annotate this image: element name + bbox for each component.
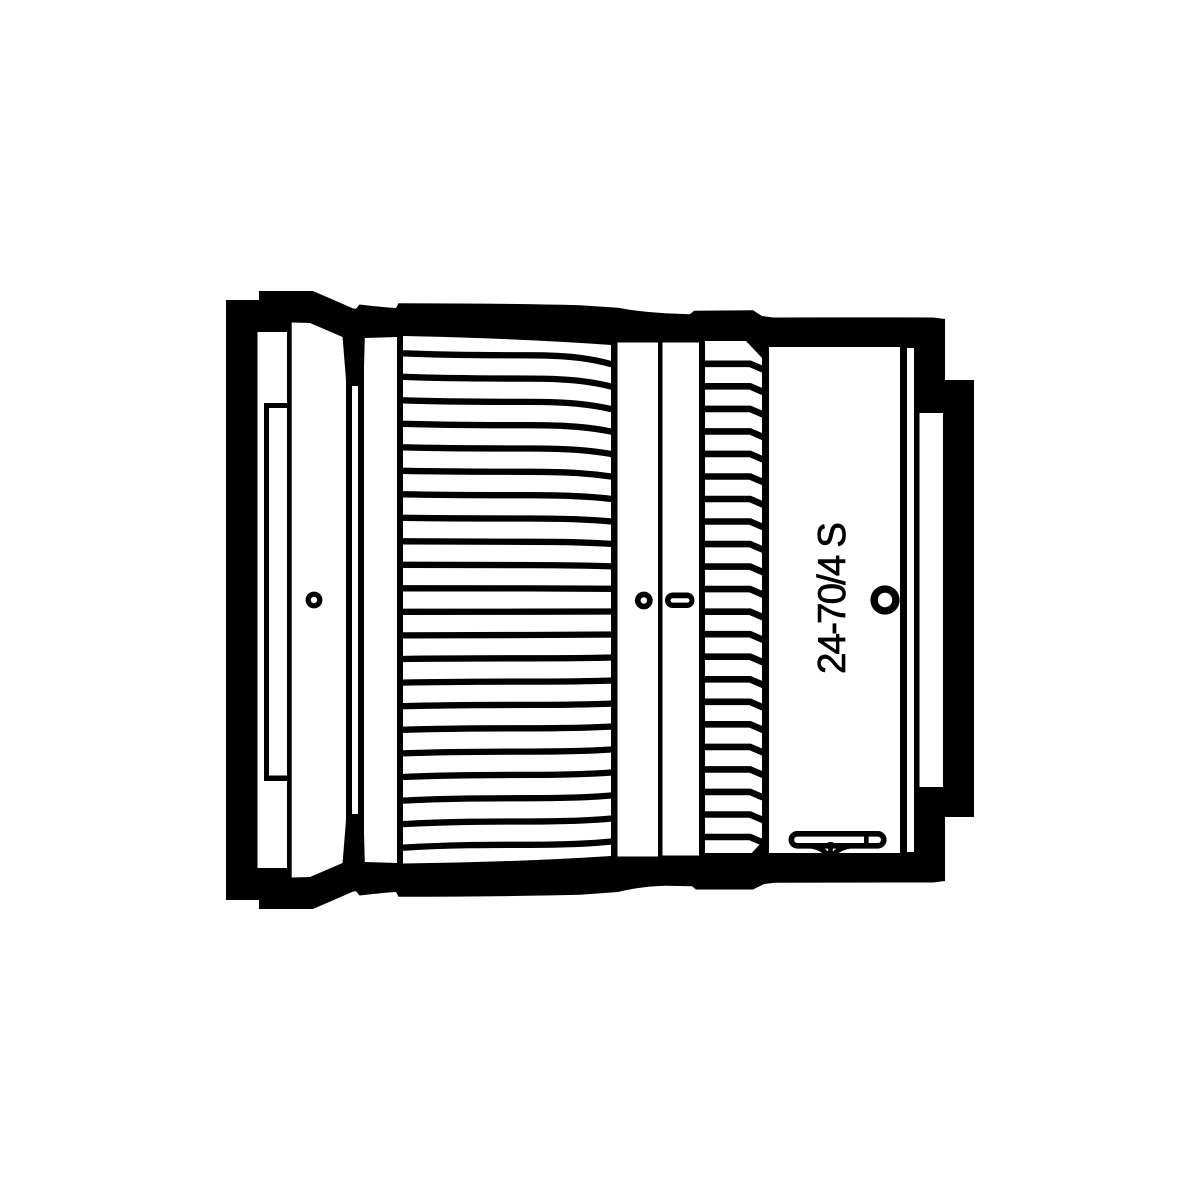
- svg-text:24-70/4 S: 24-70/4 S: [811, 522, 854, 674]
